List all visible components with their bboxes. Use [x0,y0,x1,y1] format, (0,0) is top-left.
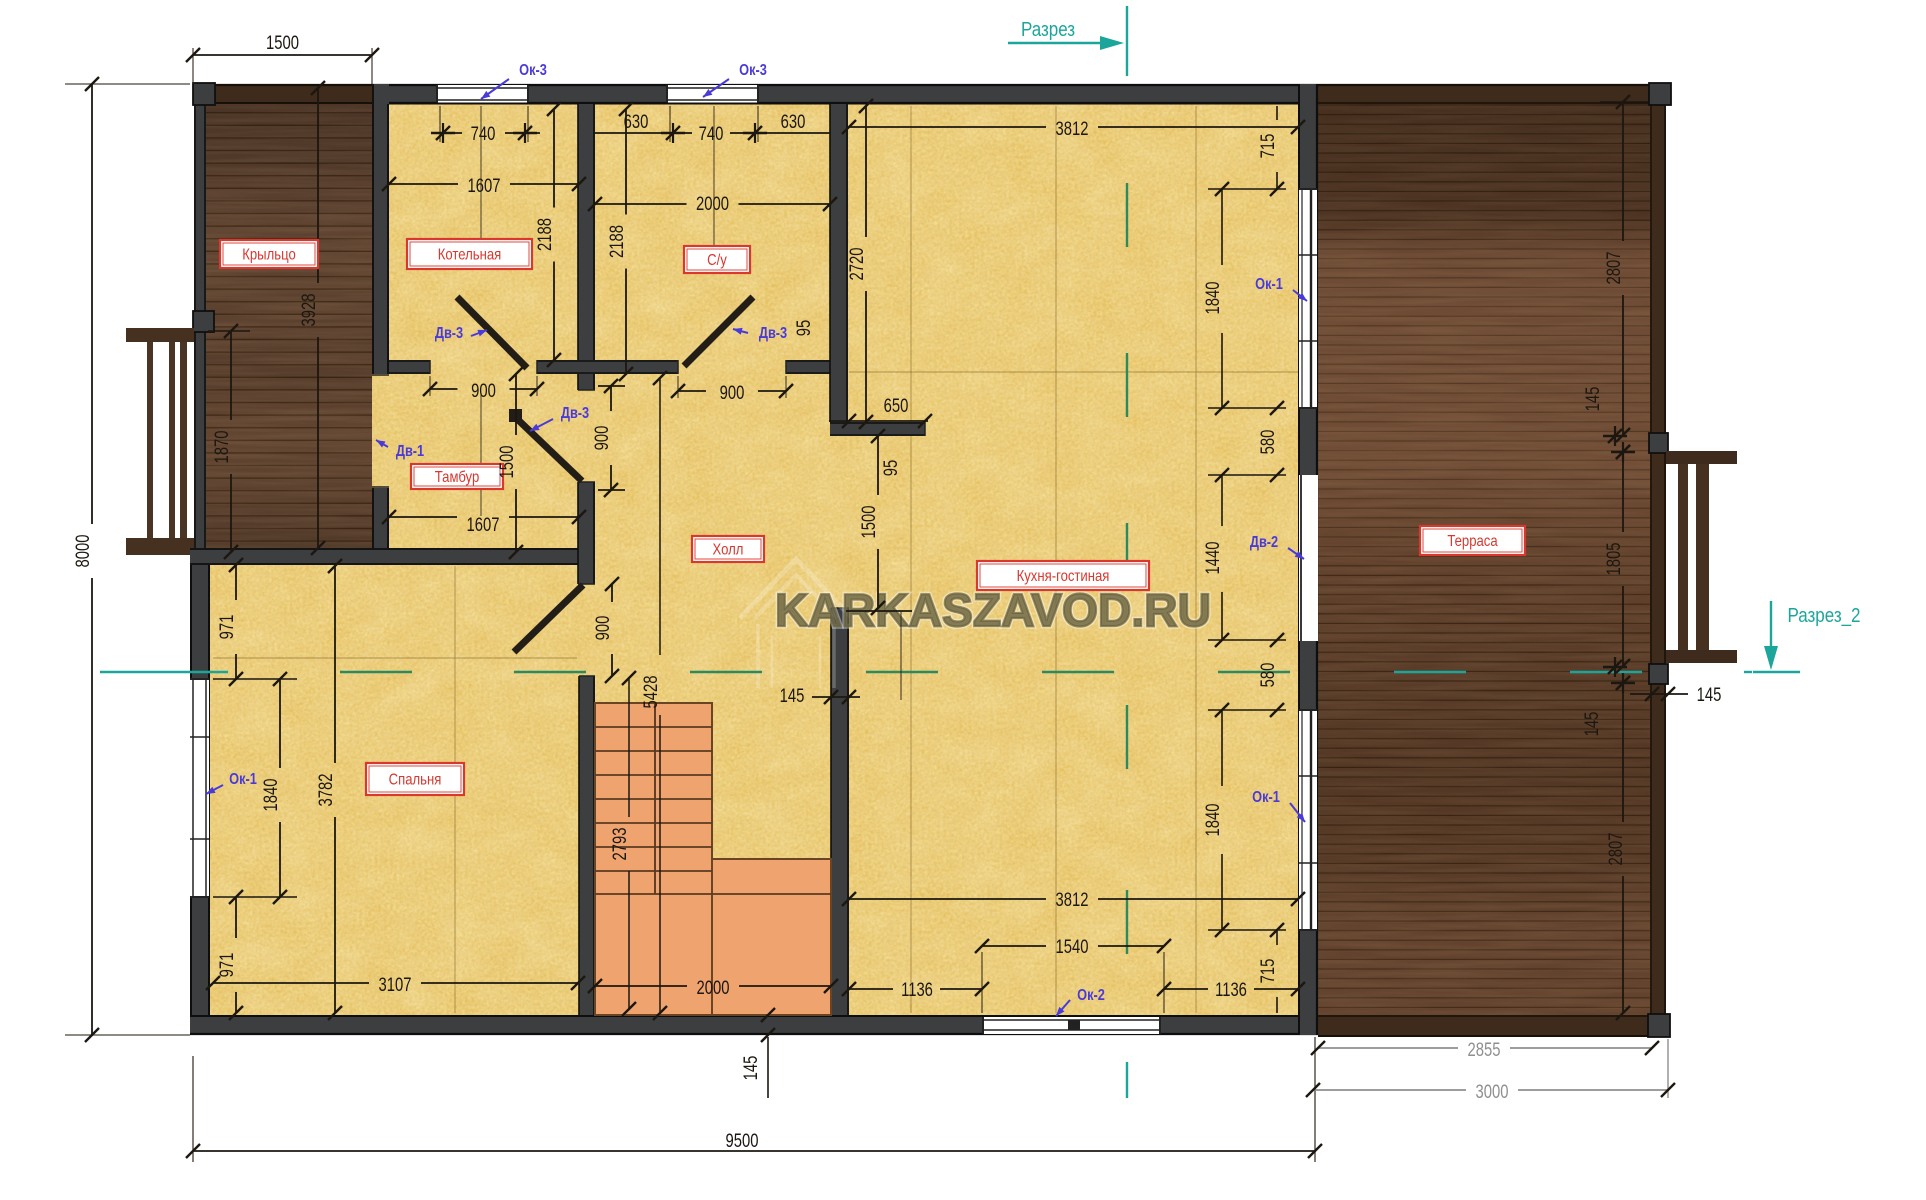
svg-text:1500: 1500 [858,506,879,539]
svg-text:Ок-1: Ок-1 [1252,789,1280,807]
svg-text:3107: 3107 [379,974,412,995]
svg-text:9500: 9500 [726,1130,759,1151]
svg-text:Дв-3: Дв-3 [759,325,787,343]
svg-text:145: 145 [1581,712,1602,737]
svg-text:Терраса: Терраса [1447,533,1498,550]
svg-text:Дв-2: Дв-2 [1250,534,1278,552]
svg-text:971: 971 [216,615,237,640]
svg-text:2000: 2000 [696,193,729,214]
svg-text:1870: 1870 [211,431,232,464]
svg-text:2807: 2807 [1605,833,1626,866]
svg-text:2793: 2793 [609,828,630,861]
svg-text:715: 715 [1257,134,1278,159]
svg-text:1805: 1805 [1603,543,1624,576]
svg-text:3812: 3812 [1056,118,1089,139]
svg-text:Ок-1: Ок-1 [229,771,257,789]
svg-text:1840: 1840 [1202,804,1223,837]
svg-text:Ок-3: Ок-3 [739,62,767,80]
svg-text:740: 740 [699,123,724,144]
svg-text:5428: 5428 [640,676,661,709]
svg-text:Ок-3: Ок-3 [519,62,547,80]
svg-text:1607: 1607 [467,514,500,535]
svg-text:Тамбур: Тамбур [435,469,480,486]
svg-text:2188: 2188 [534,218,555,251]
svg-text:Ок-1: Ок-1 [1255,276,1283,294]
svg-text:1540: 1540 [1056,936,1089,957]
svg-text:630: 630 [781,111,806,132]
svg-text:Спальня: Спальня [389,771,442,788]
svg-text:Разрез: Разрез [1021,18,1075,41]
svg-text:KARKASZAVOD.RU: KARKASZAVOD.RU [775,584,1211,636]
svg-text:900: 900 [592,616,613,641]
svg-text:1136: 1136 [901,979,933,1000]
svg-text:145: 145 [1697,684,1722,705]
svg-text:1607: 1607 [468,175,501,196]
svg-text:3928: 3928 [298,294,319,327]
svg-text:1500: 1500 [496,446,517,479]
svg-text:2188: 2188 [606,225,627,258]
svg-text:650: 650 [884,395,909,416]
svg-text:900: 900 [720,382,745,403]
svg-text:Котельная: Котельная [438,246,501,263]
svg-text:2720: 2720 [846,248,867,281]
svg-text:2000: 2000 [697,977,730,998]
svg-text:2807: 2807 [1603,252,1624,285]
svg-text:Разрез_2: Разрез_2 [1787,604,1860,628]
svg-text:Кухня-гостиная: Кухня-гостиная [1017,568,1110,585]
svg-text:3812: 3812 [1056,889,1089,910]
svg-text:2855: 2855 [1468,1039,1501,1060]
svg-text:Дв-3: Дв-3 [435,325,463,343]
svg-text:1840: 1840 [1202,282,1223,315]
svg-text:900: 900 [471,380,496,401]
svg-text:900: 900 [591,426,612,451]
svg-text:1136: 1136 [1215,979,1247,1000]
svg-text:Ок-2: Ок-2 [1077,987,1105,1005]
svg-text:8000: 8000 [72,535,93,568]
svg-text:740: 740 [471,123,496,144]
svg-text:Крыльцо: Крыльцо [242,246,296,263]
svg-text:Дв-1: Дв-1 [396,443,424,461]
svg-text:3000: 3000 [1476,1081,1509,1102]
svg-text:1500: 1500 [266,32,299,53]
svg-text:580: 580 [1257,663,1278,688]
svg-text:971: 971 [216,953,237,978]
svg-text:1840: 1840 [260,779,281,812]
svg-text:145: 145 [740,1056,761,1081]
svg-text:145: 145 [1582,387,1603,412]
svg-text:95: 95 [880,460,901,476]
svg-text:145: 145 [780,685,805,706]
svg-text:715: 715 [1257,959,1278,984]
svg-text:95: 95 [793,320,814,336]
svg-text:3782: 3782 [315,774,336,807]
svg-text:630: 630 [624,111,649,132]
svg-text:Дв-3: Дв-3 [561,405,589,423]
svg-text:1440: 1440 [1202,542,1223,575]
svg-text:С/у: С/у [707,252,727,269]
svg-text:580: 580 [1257,430,1278,455]
svg-text:Холл: Холл [713,541,744,558]
